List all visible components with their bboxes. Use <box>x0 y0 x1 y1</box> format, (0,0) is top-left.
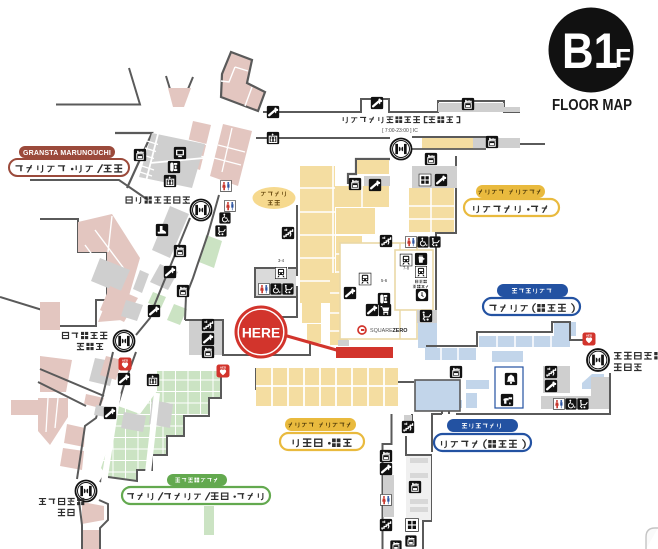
svg-text:3-4: 3-4 <box>278 258 285 263</box>
svg-text:ZERO: ZERO <box>393 328 408 334</box>
svg-text:[ 7:00-23:00 ] IC: [ 7:00-23:00 ] IC <box>382 128 418 134</box>
svg-text:7-8: 7-8 <box>403 266 410 271</box>
svg-text:5-6: 5-6 <box>381 278 388 283</box>
svg-text:FLOOR MAP: FLOOR MAP <box>552 97 632 114</box>
svg-text:F: F <box>615 43 631 73</box>
svg-text:GRANSTA MARUNOUCHI: GRANSTA MARUNOUCHI <box>23 150 111 157</box>
svg-text:B1: B1 <box>562 23 618 79</box>
svg-text:SQUARE: SQUARE <box>370 328 393 334</box>
svg-text:HERE: HERE <box>242 326 280 341</box>
